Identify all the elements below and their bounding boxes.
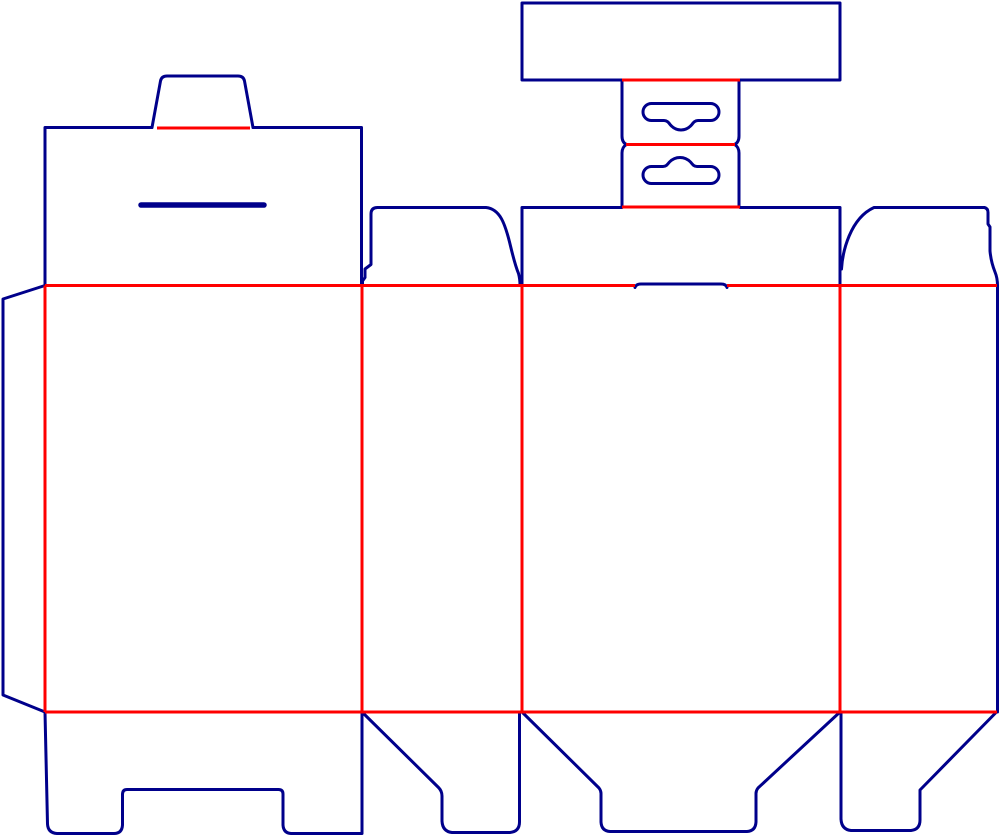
panel3-top-flap-left-edge: [522, 208, 622, 286]
bottom-flap-3-tapered: [522, 712, 840, 832]
hang-tab-lower-right-edge: [735, 145, 740, 208]
panel3-top-flap-right-edge: [740, 208, 840, 286]
header-card-outline: [522, 3, 840, 80]
hang-tab-upper-left-edge: [622, 80, 627, 145]
bottom-flap-4: [841, 712, 997, 831]
euro-slot-upper: [643, 104, 719, 131]
panel1-tuck-tab: [152, 76, 253, 128]
panel4-top-flap: [842, 208, 998, 286]
dieline-canvas: [0, 0, 1000, 836]
glue-flap-outline: [3, 286, 45, 713]
panel1-lid-left-top-edge: [45, 128, 152, 286]
tuck-lock-slit: [635, 284, 727, 288]
hang-tab-upper-right-edge: [735, 80, 740, 145]
bottom-flap-2: [362, 712, 520, 833]
hang-tab-lower-left-edge: [622, 145, 627, 208]
bottom-flap-1-notched: [45, 712, 362, 834]
euro-slot-lower: [643, 158, 719, 184]
panel1-lid-right-edge: [253, 128, 362, 286]
panel2-top-flap: [363, 208, 521, 286]
dieline-page: [0, 0, 1000, 836]
cut-lines-group: [3, 3, 998, 834]
crease-lines-group: [45, 80, 997, 712]
